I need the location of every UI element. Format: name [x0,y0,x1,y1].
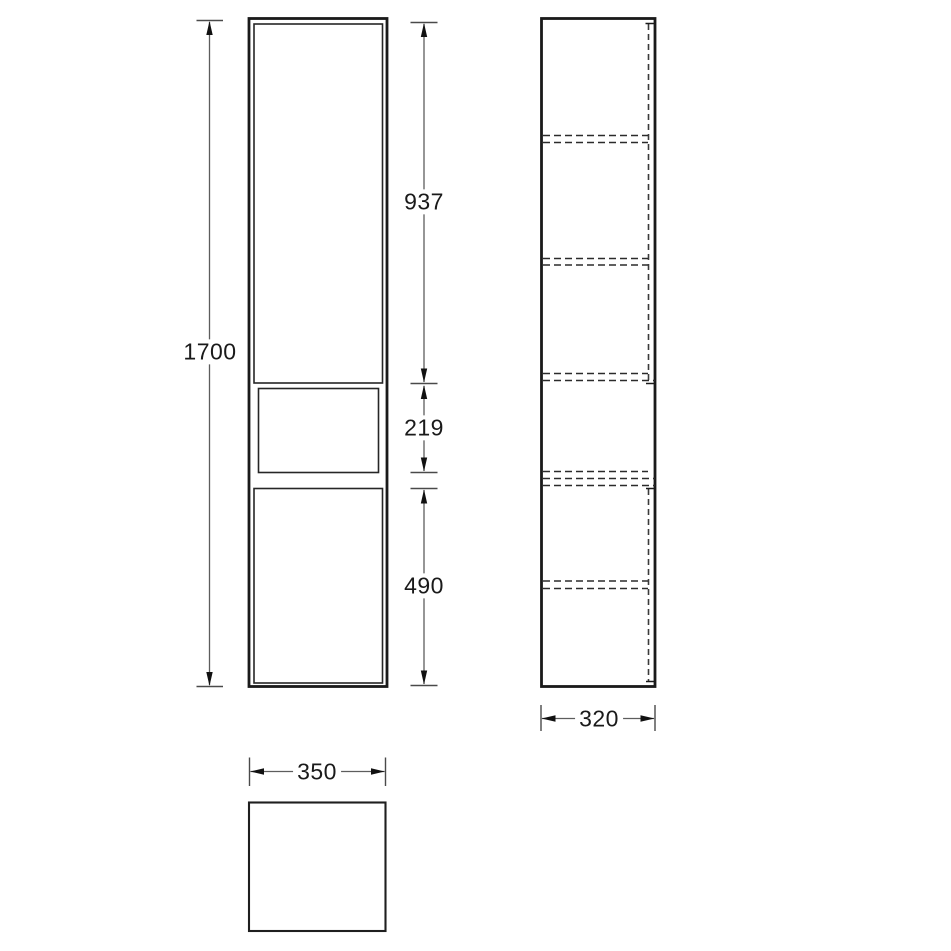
front-carcass-outline [249,19,387,687]
front-lower-door [254,489,383,684]
front-elevation-view [249,19,387,687]
dim-arrow-down [421,369,427,383]
dim-arrow-down [206,672,212,686]
dim-label-width: 350 [293,759,341,784]
dim-arrow-up [421,490,427,504]
dim-arrow-right [641,715,655,721]
dim-arrow-right [371,768,385,774]
dim-arrow-down [421,671,427,685]
front-upper-door [254,24,383,383]
dim-label-upper-door-height: 937 [400,189,448,214]
plan-outline [249,803,386,932]
dim-arrow-left [250,768,264,774]
drawing-svg [0,0,951,951]
dim-label-total-height: 1700 [179,339,240,364]
dim-arrow-left [542,715,556,721]
dim-arrow-down [421,458,427,472]
front-open-shelf-recess [259,389,379,473]
plan-view [249,803,386,932]
dim-arrow-up [421,385,427,399]
side-section-view [542,19,656,687]
dim-label-depth: 320 [575,706,623,731]
technical-drawing-canvas: 1700 937 219 490 320 350 [0,0,951,951]
dim-label-open-shelf-height: 219 [400,415,448,440]
dim-arrow-up [421,23,427,37]
side-hidden-shelf-lines [543,136,655,589]
dim-arrow-up [206,21,212,35]
dim-label-lower-door-height: 490 [400,573,448,598]
side-carcass-outline [542,19,656,687]
